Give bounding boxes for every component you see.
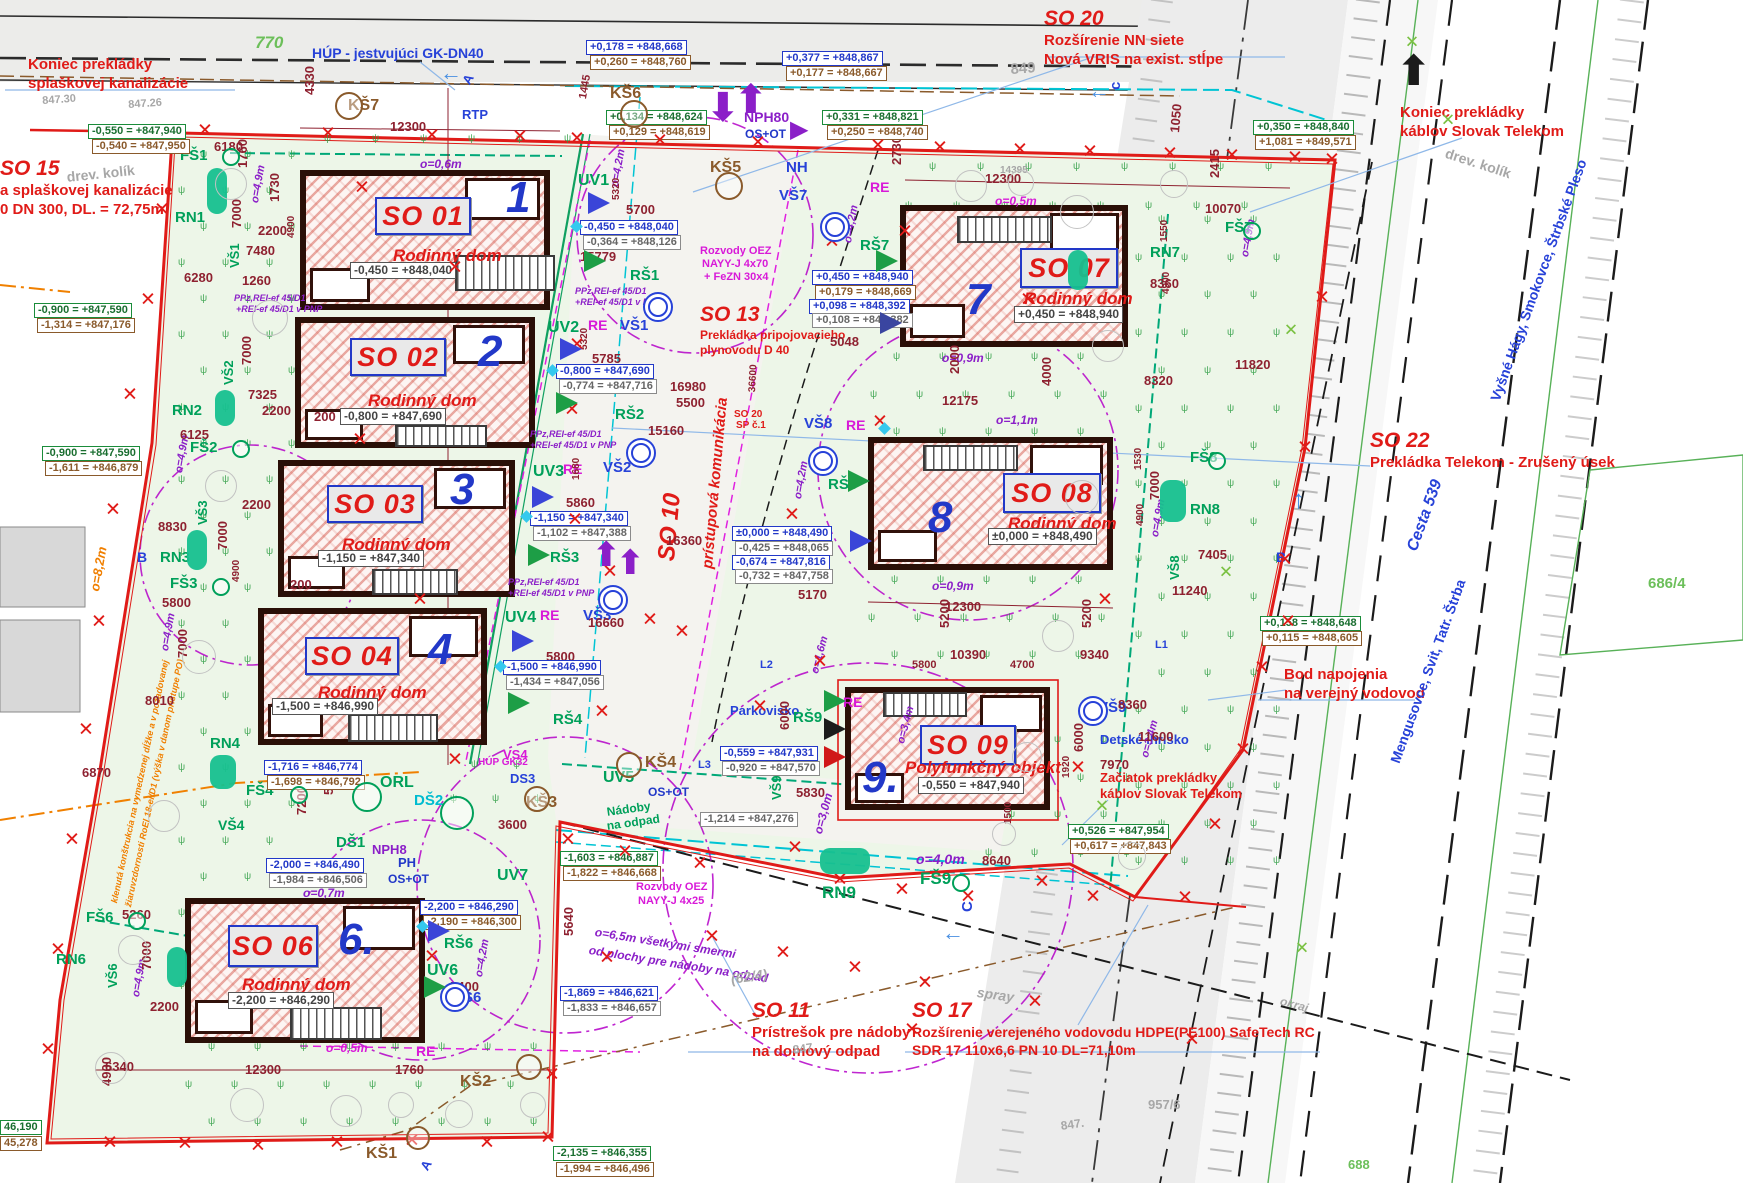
- tree-icon: [1042, 620, 1074, 652]
- drain-shaft-icon: [212, 578, 230, 596]
- grass-icon: ψ: [1031, 848, 1038, 858]
- map-label: HÚP - jestvujúci GK-DN40: [312, 46, 484, 60]
- map-label: KŠ1: [366, 1146, 397, 1162]
- stairs-icon: [923, 445, 1018, 471]
- grass-icon: ψ: [1273, 705, 1280, 715]
- survey-x-marker: ✕: [1441, 112, 1455, 129]
- boundary-x-marker: ✕: [787, 839, 803, 858]
- grass-icon: ψ: [960, 613, 967, 623]
- elevation-box: +0,526 = +847,954: [1068, 824, 1169, 839]
- annotation-title: SO 22: [1370, 428, 1615, 454]
- entry-wedge-icon: [508, 692, 530, 714]
- elevation-box: +0,158 = +848,648: [1260, 616, 1361, 631]
- boundary-x-marker: ✕: [250, 1137, 266, 1156]
- water-shaft-icon: [626, 438, 656, 468]
- map-label: +REI-ef 45/D1 v PNP: [530, 441, 616, 450]
- water-shaft-icon: [598, 585, 628, 615]
- grass-icon: ψ: [1250, 290, 1257, 300]
- boundary-x-marker: ✕: [320, 125, 336, 144]
- grass-icon: ψ: [1204, 743, 1211, 753]
- grass-icon: ψ: [200, 583, 207, 593]
- grass-icon: ψ: [178, 330, 185, 340]
- grass-icon: ψ: [300, 1117, 307, 1127]
- building-elevation: -0,800 = +847,690: [340, 408, 446, 425]
- entry-wedge-icon: [424, 976, 446, 998]
- elevation-box: +0,450 = +848,940: [812, 270, 913, 285]
- boundary-x-marker: ✕: [412, 591, 428, 610]
- dimension-label: 1500: [1004, 802, 1014, 824]
- annotation-line: káblov Slovak Telekom: [1100, 786, 1242, 802]
- annotation-line: Začiatok prekládky: [1100, 770, 1242, 786]
- grass-icon: ψ: [929, 162, 936, 172]
- grass-icon: ψ: [1031, 352, 1038, 362]
- grass-icon: ψ: [937, 650, 944, 660]
- drain-shaft-icon: [352, 782, 382, 812]
- building-elevation: -1,500 = +846,990: [272, 698, 378, 715]
- elevation-box: -1,716 = +846,774: [264, 760, 362, 775]
- boundary-x-marker: ✕: [40, 1041, 56, 1060]
- map-label: VŠ8: [804, 416, 832, 431]
- boundary-x-marker: ✕: [567, 511, 583, 530]
- dimension-label: 16360: [666, 534, 702, 547]
- grass-icon: ψ: [1227, 705, 1234, 715]
- dimension-label: 7000: [230, 199, 243, 228]
- boundary-x-marker: ✕: [78, 721, 94, 740]
- boundary-x-marker: ✕: [329, 1134, 345, 1153]
- elevation-box: 45,278: [0, 1136, 42, 1151]
- grass-icon: ψ: [244, 583, 251, 593]
- dimension-label: 6125: [180, 428, 209, 441]
- dimension-label: 8360: [1118, 698, 1147, 711]
- drain-shaft-icon: [128, 912, 146, 930]
- dimension-label: 2415: [1208, 149, 1221, 178]
- dimension-label: 5830: [796, 786, 825, 799]
- boundary-x-marker: ✕: [904, 1021, 920, 1040]
- grass-icon: ψ: [1204, 290, 1211, 300]
- boundary-x-marker: ✕: [1277, 551, 1293, 570]
- boundary-x-marker: ✕: [917, 974, 933, 993]
- elevation-box: -1,698 = +846,792: [267, 775, 365, 790]
- entry-wedge-icon: [556, 392, 578, 414]
- grass-icon: ψ: [870, 390, 877, 400]
- map-label: VŠ1: [620, 318, 648, 333]
- map-label: 847.: [1060, 1117, 1085, 1132]
- boundary-x-marker: ✕: [1254, 659, 1270, 678]
- map-label: 849: [1010, 60, 1036, 77]
- elevation-box: -1,984 = +846,506: [269, 873, 367, 888]
- manhole-icon: [616, 752, 642, 778]
- grass-icon: ψ: [1031, 427, 1038, 437]
- elevation-box: -0,674 = +847,816: [732, 555, 830, 570]
- grass-icon: ψ: [939, 427, 946, 437]
- map-label: 686/4: [1648, 576, 1686, 591]
- building-number: 3: [450, 468, 474, 512]
- entry-wedge-icon: [532, 486, 554, 508]
- grass-icon: ψ: [1008, 390, 1015, 400]
- grass-icon: ψ: [985, 427, 992, 437]
- dimension-label: 8320: [1144, 374, 1173, 387]
- annotation-note: SO 11Prístrešok pre nádobyna domový odpa…: [752, 998, 910, 1062]
- arrow-icon: ↑: [1292, 486, 1305, 512]
- grass-icon: ψ: [231, 1080, 238, 1090]
- entry-wedge-icon: [848, 470, 870, 492]
- grass-icon: ψ: [1250, 592, 1257, 602]
- dimension-label: 4900: [1136, 504, 1146, 526]
- boundary-x-marker: ✕: [424, 948, 440, 967]
- grass-icon: ψ: [868, 613, 875, 623]
- annotation-note: Koniec prekládkykáblov Slovak Telekom: [1400, 104, 1564, 142]
- boundary-x-marker: ✕: [1324, 151, 1340, 170]
- dimension-label: 5800: [912, 660, 936, 671]
- grass-icon: ψ: [1054, 390, 1061, 400]
- building-number: 9.: [862, 756, 899, 800]
- grass-icon: ψ: [1158, 441, 1165, 451]
- grass-icon: ψ: [916, 390, 923, 400]
- manhole-icon: [516, 1054, 542, 1080]
- dimension-label: 5640: [562, 907, 575, 936]
- arrow-icon: ←: [942, 922, 964, 944]
- grass-icon: ψ: [244, 366, 251, 376]
- dimension-label: 5800: [162, 596, 191, 609]
- dimension-label: 2200: [242, 498, 271, 511]
- dimension-label: 6000: [778, 701, 791, 730]
- grass-icon: ψ: [1077, 352, 1084, 362]
- tree-icon: [388, 1092, 414, 1118]
- map-label: o=0,5m: [326, 1042, 368, 1054]
- map-label: VŠ2: [222, 360, 235, 385]
- boundary-x-marker: ✕: [1027, 993, 1043, 1012]
- dimension-label: 10070: [1205, 202, 1241, 215]
- annotation-note: SO 20Rozšírenie NN sieteNová VRIS na exi…: [1044, 6, 1223, 70]
- grass-icon: ψ: [1227, 253, 1234, 263]
- stairs-icon: [348, 714, 438, 742]
- entry-wedge-icon: [824, 690, 846, 712]
- tree-icon: [230, 1088, 264, 1122]
- elevation-box: -0,540 = +847,950: [92, 139, 190, 154]
- grass-icon: ψ: [1273, 253, 1280, 263]
- dimension-label: 6280: [184, 271, 213, 284]
- elevation-box: -2,200 = +846,290: [420, 900, 518, 915]
- annotation-line: Bod napojenia: [1284, 666, 1425, 685]
- boundary-x-marker: ✕: [177, 1135, 193, 1154]
- grass-icon: ψ: [1250, 743, 1257, 753]
- tree-icon: [1160, 170, 1188, 198]
- annotation-title: SO 11: [752, 998, 910, 1024]
- annotation-line: Prístrešok pre nádoby: [752, 1024, 910, 1043]
- annotation-note: SO 22Prekládka Telekom - Zrušený úsek: [1370, 428, 1615, 473]
- manhole-icon: [335, 92, 363, 120]
- map-label: OS+OT: [648, 786, 689, 798]
- map-label: RŠ4: [553, 712, 582, 727]
- map-label: NAYY-J 4x70: [702, 259, 768, 270]
- elevation-box: -1,500 = +846,990: [503, 660, 601, 675]
- dimension-label: 1550: [1160, 220, 1170, 242]
- boundary-x-marker: ✕: [1070, 759, 1086, 778]
- boundary-x-marker: ✕: [352, 431, 368, 450]
- grass-icon: ψ: [1181, 705, 1188, 715]
- grass-icon: ψ: [530, 1117, 537, 1127]
- dimension-label: 2200: [150, 1000, 179, 1013]
- map-label: HÚP GK32: [478, 758, 528, 768]
- boundary-x-marker: ✕: [594, 703, 610, 722]
- tree-icon: [205, 470, 237, 502]
- dimension-label: 10390: [950, 648, 986, 661]
- map-label: SO 20: [734, 410, 762, 420]
- boundary-x-marker: ✕: [1085, 888, 1101, 907]
- grass-icon: ψ: [266, 475, 273, 485]
- building-elevation: -0,450 = +848,040: [350, 262, 456, 279]
- grass-icon: ψ: [277, 1080, 284, 1090]
- map-label: RE: [846, 418, 865, 432]
- map-label: RE: [416, 1044, 435, 1058]
- arrow-icon: ⬆: [734, 80, 768, 120]
- boundary-x-marker: ✕: [617, 843, 633, 862]
- boundary-x-marker: ✕: [1162, 145, 1178, 164]
- grass-icon: ψ: [1181, 630, 1188, 640]
- grass-icon: ψ: [1181, 404, 1188, 414]
- dimension-label: 15160: [648, 424, 684, 437]
- building-room: [910, 304, 965, 338]
- boundary-x-marker: ✕: [105, 501, 121, 520]
- boundary-x-marker: ✕: [932, 139, 948, 158]
- building-label: SO 03: [327, 485, 423, 523]
- retention-tank-icon: [1160, 480, 1186, 522]
- dimension-label: 200: [290, 578, 312, 591]
- grass-icon: ψ: [983, 575, 990, 585]
- boundary-x-marker: ✕: [704, 928, 720, 947]
- elevation-box: -0,364 = +848,126: [583, 235, 681, 250]
- site-plan: ψψψψψψψψψψψψψψψψψψψψψψψψψψψψψψψψψψψψψψψψ…: [0, 0, 1743, 1183]
- manhole-icon: [524, 786, 550, 812]
- grass-icon: ψ: [244, 799, 251, 809]
- boundary-x-marker: ✕: [1082, 143, 1098, 162]
- grass-icon: ψ: [891, 650, 898, 660]
- grass-icon: ψ: [1181, 253, 1188, 263]
- grass-icon: ψ: [1158, 592, 1165, 602]
- grass-icon: ψ: [222, 330, 229, 340]
- map-label: DŠ2: [414, 793, 443, 808]
- annotation-line: Nová VRIS na exist. stĺpe: [1044, 51, 1223, 70]
- tree-icon: [445, 1100, 473, 1128]
- annotation-line: na verejný vodovod: [1284, 685, 1425, 704]
- tree-icon: [215, 168, 247, 200]
- dimension-label: 16660: [588, 616, 624, 629]
- annotation-line: Koniec prekládky: [1400, 104, 1564, 123]
- annotation-note: Začiatok prekládkykáblov Slovak Telekom: [1100, 770, 1242, 803]
- map-label: 847.26: [128, 98, 162, 111]
- grass-icon: ψ: [1265, 162, 1272, 172]
- grass-icon: ψ: [266, 836, 273, 846]
- elevation-box: -0,550 = +847,940: [88, 124, 186, 139]
- boundary-x-marker: ✕: [447, 259, 463, 278]
- grass-icon: ψ: [222, 691, 229, 701]
- boundary-x-marker: ✕: [1012, 141, 1028, 160]
- grass-icon: ψ: [244, 655, 251, 665]
- grass-icon: ψ: [372, 134, 379, 144]
- map-label: RN8: [1190, 502, 1220, 517]
- map-label: o=4,0m: [916, 852, 965, 866]
- grass-icon: ψ: [392, 1117, 399, 1127]
- elevation-box: +0,177 = +848,667: [786, 66, 887, 81]
- drain-shaft-icon: [952, 874, 970, 892]
- map-label: RTP: [462, 108, 488, 121]
- annotation-note: SO 15a splaškovej kanalizácie0 DN 300, D…: [0, 156, 173, 220]
- grass-icon: ψ: [244, 872, 251, 882]
- map-label: UV1: [578, 173, 609, 189]
- survey-x-marker: ✕: [1219, 564, 1233, 581]
- grass-icon: ψ: [369, 1080, 376, 1090]
- tree-icon: [118, 935, 148, 965]
- grass-icon: ψ: [1273, 781, 1280, 791]
- grass-icon: ψ: [208, 1042, 215, 1052]
- entry-wedge-icon: [850, 530, 872, 552]
- boundary-x-marker: ✕: [784, 506, 800, 525]
- entry-wedge-icon: [876, 250, 898, 272]
- grass-icon: ψ: [1135, 404, 1142, 414]
- grass-icon: ψ: [200, 727, 207, 737]
- grass-icon: ψ: [266, 547, 273, 557]
- map-label: c: [1108, 82, 1123, 90]
- map-label: NPH8: [372, 843, 407, 856]
- grass-icon: ψ: [200, 799, 207, 809]
- annotation-line: Rozšírenie NN siete: [1044, 32, 1223, 51]
- manhole-icon: [406, 1126, 430, 1150]
- boundary-x-marker: ✕: [1184, 1031, 1200, 1050]
- tree-icon: [520, 1092, 546, 1118]
- drain-shaft-icon: [440, 796, 474, 830]
- grass-icon: ψ: [438, 1042, 445, 1052]
- dimension-label: 5320: [612, 178, 622, 200]
- grass-icon: ψ: [1227, 404, 1234, 414]
- map-label: UV3: [533, 464, 564, 480]
- map-label: RŠ2: [615, 407, 644, 422]
- annotation-line: Prekládka pripojovacieho: [700, 328, 845, 343]
- boundary-x-marker: ✕: [122, 386, 138, 405]
- dimension-label: 5860: [566, 496, 595, 509]
- dimension-label: 6870: [82, 766, 111, 779]
- water-shaft-icon: [808, 446, 838, 476]
- grass-icon: ψ: [893, 352, 900, 362]
- elevation-box: -1,822 = +846,668: [563, 866, 661, 881]
- manhole-icon: [715, 172, 743, 200]
- map-label: RN4: [210, 736, 240, 751]
- entry-wedge-icon: [588, 192, 610, 214]
- map-label: VŠ6: [106, 963, 119, 988]
- elevation-box: -0,900 = +847,590: [34, 303, 132, 318]
- map-label: o=0,9m: [932, 580, 974, 592]
- arrow-icon: ⬆: [616, 546, 645, 580]
- map-label: OS+OT: [388, 873, 429, 885]
- dimension-label: 2730: [890, 136, 903, 165]
- grass-icon: ψ: [891, 575, 898, 585]
- boundary-x-marker: ✕: [569, 130, 585, 149]
- entry-wedge-icon: [824, 718, 846, 740]
- grass-icon: ψ: [1227, 630, 1234, 640]
- boundary-x-marker: ✕: [1177, 889, 1193, 908]
- map-label: L1: [1155, 640, 1168, 651]
- dimension-label: 200: [314, 410, 336, 423]
- map-label: + FeZN 30x4: [704, 272, 769, 283]
- tree-icon: [1012, 742, 1042, 772]
- grass-icon: ψ: [507, 1080, 514, 1090]
- map-label: UV4: [505, 610, 536, 626]
- grass-icon: ψ: [1181, 554, 1188, 564]
- map-label: RŠ1: [630, 268, 659, 283]
- boundary-x-marker: ✕: [870, 137, 886, 156]
- dimension-label: 12300: [245, 1063, 281, 1076]
- grass-icon: ψ: [392, 1042, 399, 1052]
- annotation-line: SDR 17 110x6,6 PN 10 DL=71,10m: [912, 1042, 1315, 1060]
- grass-icon: ψ: [208, 1117, 215, 1127]
- dimension-label: 11240: [1172, 584, 1207, 597]
- grass-icon: ψ: [438, 1117, 445, 1127]
- grass-icon: ψ: [1204, 668, 1211, 678]
- elevation-box: -0,450 = +848,040: [580, 220, 678, 235]
- retention-tank-icon: [1068, 250, 1088, 290]
- grass-icon: ψ: [200, 872, 207, 882]
- dimension-label: 6000: [1072, 723, 1085, 752]
- grass-icon: ψ: [1077, 427, 1084, 437]
- boundary-x-marker: ✕: [1280, 613, 1296, 632]
- dimension-label: 9340: [1080, 648, 1109, 661]
- map-label: 847.30: [42, 94, 76, 107]
- map-label: UV7: [497, 868, 528, 884]
- map-label: FŠ3: [170, 576, 198, 591]
- entry-wedge-icon: [824, 746, 846, 768]
- dimension-label: 5170: [798, 588, 827, 601]
- arrow-icon: ←: [1088, 80, 1110, 102]
- stairs-icon: [290, 1007, 382, 1040]
- entry-wedge-icon: [880, 312, 902, 334]
- dimension-label: 2000: [948, 345, 961, 374]
- building-label: SO 04: [305, 637, 399, 675]
- annotation-note: Bod napojeniana verejný vodovod: [1284, 666, 1425, 704]
- dimension-label: 7325: [248, 388, 277, 401]
- tree-icon: [1092, 330, 1124, 362]
- tree-icon: [148, 800, 180, 832]
- dimension-label: 7405: [1198, 548, 1227, 561]
- dimension-label: 16980: [670, 380, 706, 393]
- boundary-x-marker: ✕: [692, 855, 708, 874]
- boundary-x-marker: ✕: [102, 1134, 118, 1153]
- map-label: RŠ3: [550, 550, 579, 565]
- grass-icon: ψ: [1135, 328, 1142, 338]
- building-elevation: ±0,000 = +848,490: [988, 528, 1097, 545]
- tree-icon: [992, 822, 1016, 846]
- survey-x-marker: ✕: [1095, 798, 1109, 815]
- map-label: o=0,6m: [420, 158, 462, 170]
- grass-icon: ψ: [484, 1042, 491, 1052]
- dimension-label: 7480: [246, 244, 275, 257]
- dimension-label: 1260: [242, 274, 271, 287]
- dimension-label: 2200: [258, 224, 287, 237]
- dimension-label: 4900: [232, 560, 242, 582]
- annotation-note: Koniec prekládkysplaškovej kanalizácie: [28, 56, 188, 94]
- boundary-x-marker: ✕: [750, 134, 766, 153]
- map-label: SO 10: [655, 492, 685, 562]
- map-label: FŠ6: [86, 910, 114, 925]
- elevation-box: -1,434 = +847,056: [506, 675, 604, 690]
- boundary-x-marker: ✕: [812, 653, 828, 672]
- elevation-box: +0,260 = +848,760: [590, 55, 691, 70]
- boundary-x-marker: ✕: [154, 201, 170, 220]
- dimension-label: 1050: [1168, 103, 1183, 133]
- grass-icon: ψ: [492, 794, 499, 804]
- grass-icon: ψ: [1181, 328, 1188, 338]
- dimension-label: 7000: [216, 521, 229, 550]
- grass-icon: ψ: [200, 366, 207, 376]
- building-elevation: -2,200 = +846,290: [228, 992, 334, 1009]
